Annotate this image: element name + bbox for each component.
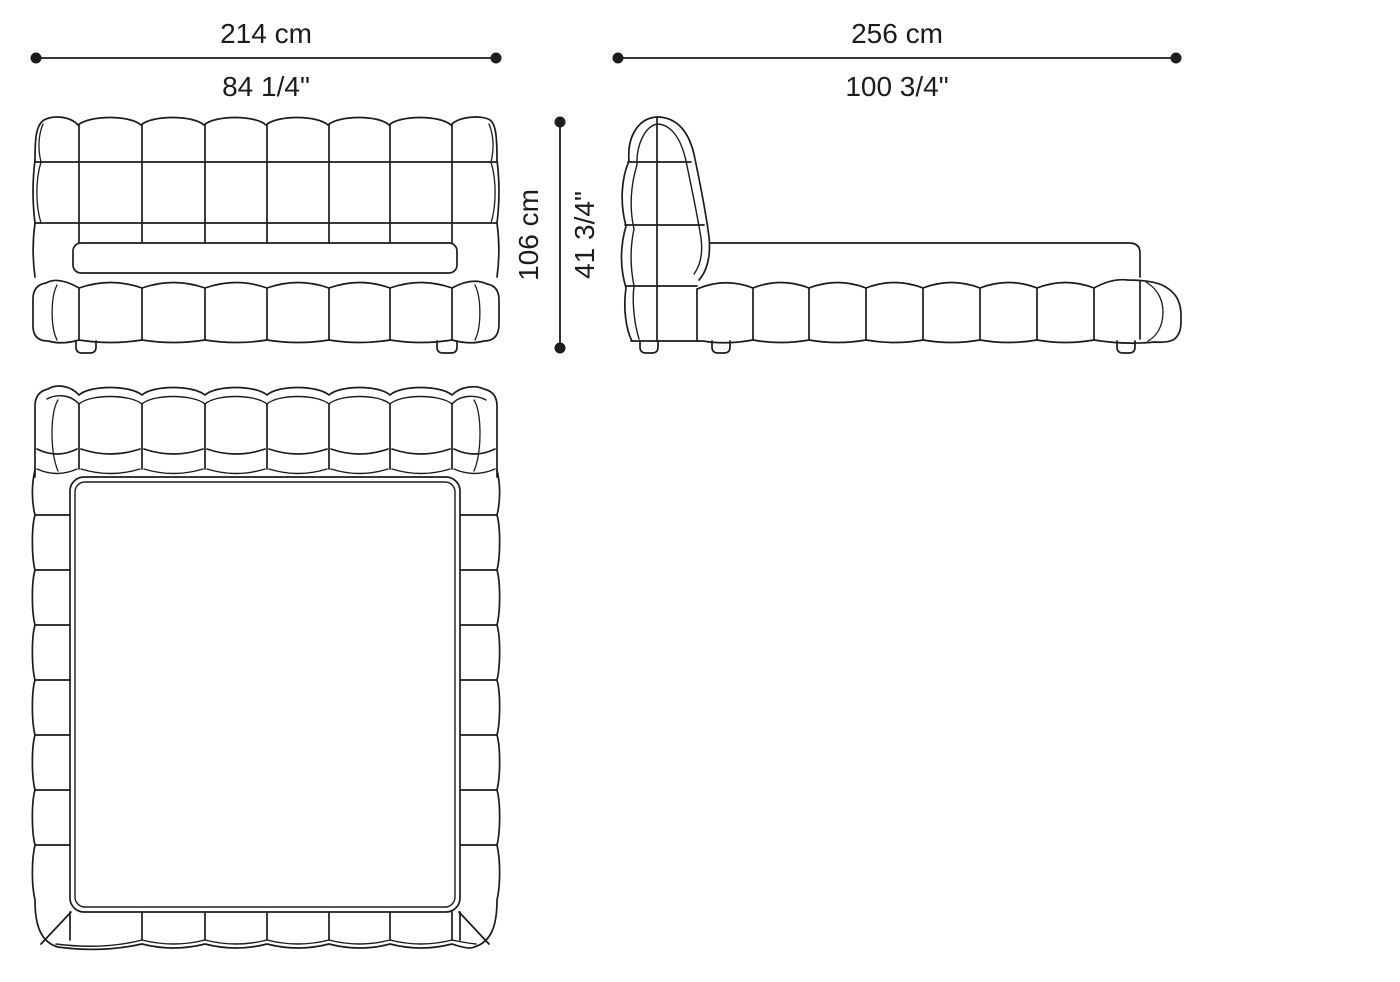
bed-foot: [640, 341, 658, 353]
dimension-endpoint-dot: [1171, 53, 1182, 64]
cap-seam: [37, 162, 41, 223]
headboard-left-edge: [33, 160, 35, 277]
side-view: [622, 117, 1182, 353]
cushion-bottom-arc: [81, 449, 140, 454]
cap-seam: [491, 162, 495, 223]
dimension-label-inch: 41 3/4": [569, 191, 600, 279]
cushion-bottom-arc: [37, 449, 77, 454]
cushion-bottom-arc: [331, 449, 388, 454]
technical-drawing: 214 cm 84 1/4" 256 cm 100 3/4" 106 cm 41…: [0, 0, 1400, 982]
dimension-label-cm: 214 cm: [220, 18, 312, 49]
headboard-right-edge: [497, 160, 499, 277]
band-cap-seams: [52, 400, 480, 471]
cap-seam: [52, 400, 58, 471]
dimension-front-width: 214 cm 84 1/4": [31, 18, 502, 102]
mattress-outline-outer: [70, 477, 460, 912]
mattress-bar: [73, 243, 457, 273]
dimension-endpoint-dot: [491, 53, 502, 64]
dimension-label-inch: 84 1/4": [222, 71, 310, 102]
dimension-label-cm: 106 cm: [513, 189, 544, 281]
bed-foot: [437, 341, 457, 353]
headboard-band-inner-fringe: [47, 396, 486, 404]
cushion-bottom-arc: [207, 449, 265, 454]
dimension-label-inch: 100 3/4": [845, 71, 948, 102]
top-view: [32, 386, 499, 949]
headboard-fringe-bottoms: [37, 469, 495, 474]
fringe-bottom-arc: [331, 469, 388, 474]
fringe-bottom-arc: [269, 469, 327, 474]
cushion-bottom-arc: [454, 449, 495, 454]
dimension-endpoint-dot: [31, 53, 42, 64]
fringe-bottom-arc: [144, 469, 203, 474]
cap-seam: [39, 124, 43, 162]
cushion-bottom-arc: [269, 449, 327, 454]
base-cushions: [697, 280, 1181, 343]
cap-seam: [474, 400, 480, 471]
fringe-bottom-arc: [392, 469, 450, 474]
foot-edge-inner-scallops: [56, 940, 476, 946]
front-view: [33, 117, 499, 353]
headboard-cap-seams: [37, 124, 495, 223]
platform-rail: [705, 243, 1140, 277]
cushion-bottom-arc: [392, 449, 450, 454]
fringe-bottom-arc: [207, 469, 265, 474]
dimension-endpoint-dot: [555, 117, 566, 128]
bed-foot: [76, 341, 96, 353]
drawing-canvas: 214 cm 84 1/4" 256 cm 100 3/4" 106 cm 41…: [0, 0, 1400, 982]
dimension-label-cm: 256 cm: [851, 18, 943, 49]
cushion-bottom-arc: [144, 449, 203, 454]
fringe-bottom-arc: [81, 469, 140, 474]
foot-rail-dividers: [41, 912, 489, 944]
headboard-band-outer: [35, 386, 497, 477]
dimension-endpoint-dot: [555, 343, 566, 354]
corner-mitre-line: [41, 912, 71, 944]
base-cushions: [33, 280, 499, 342]
dimension-height: 106 cm 41 3/4": [513, 117, 600, 354]
cap-seam: [489, 124, 493, 162]
dimension-endpoint-dot: [613, 53, 624, 64]
headboard-top-outline: [35, 117, 497, 160]
headboard-cushion-bottoms: [37, 449, 495, 454]
corner-mitre-line: [459, 912, 489, 944]
dimension-side-length: 256 cm 100 3/4": [613, 18, 1182, 102]
